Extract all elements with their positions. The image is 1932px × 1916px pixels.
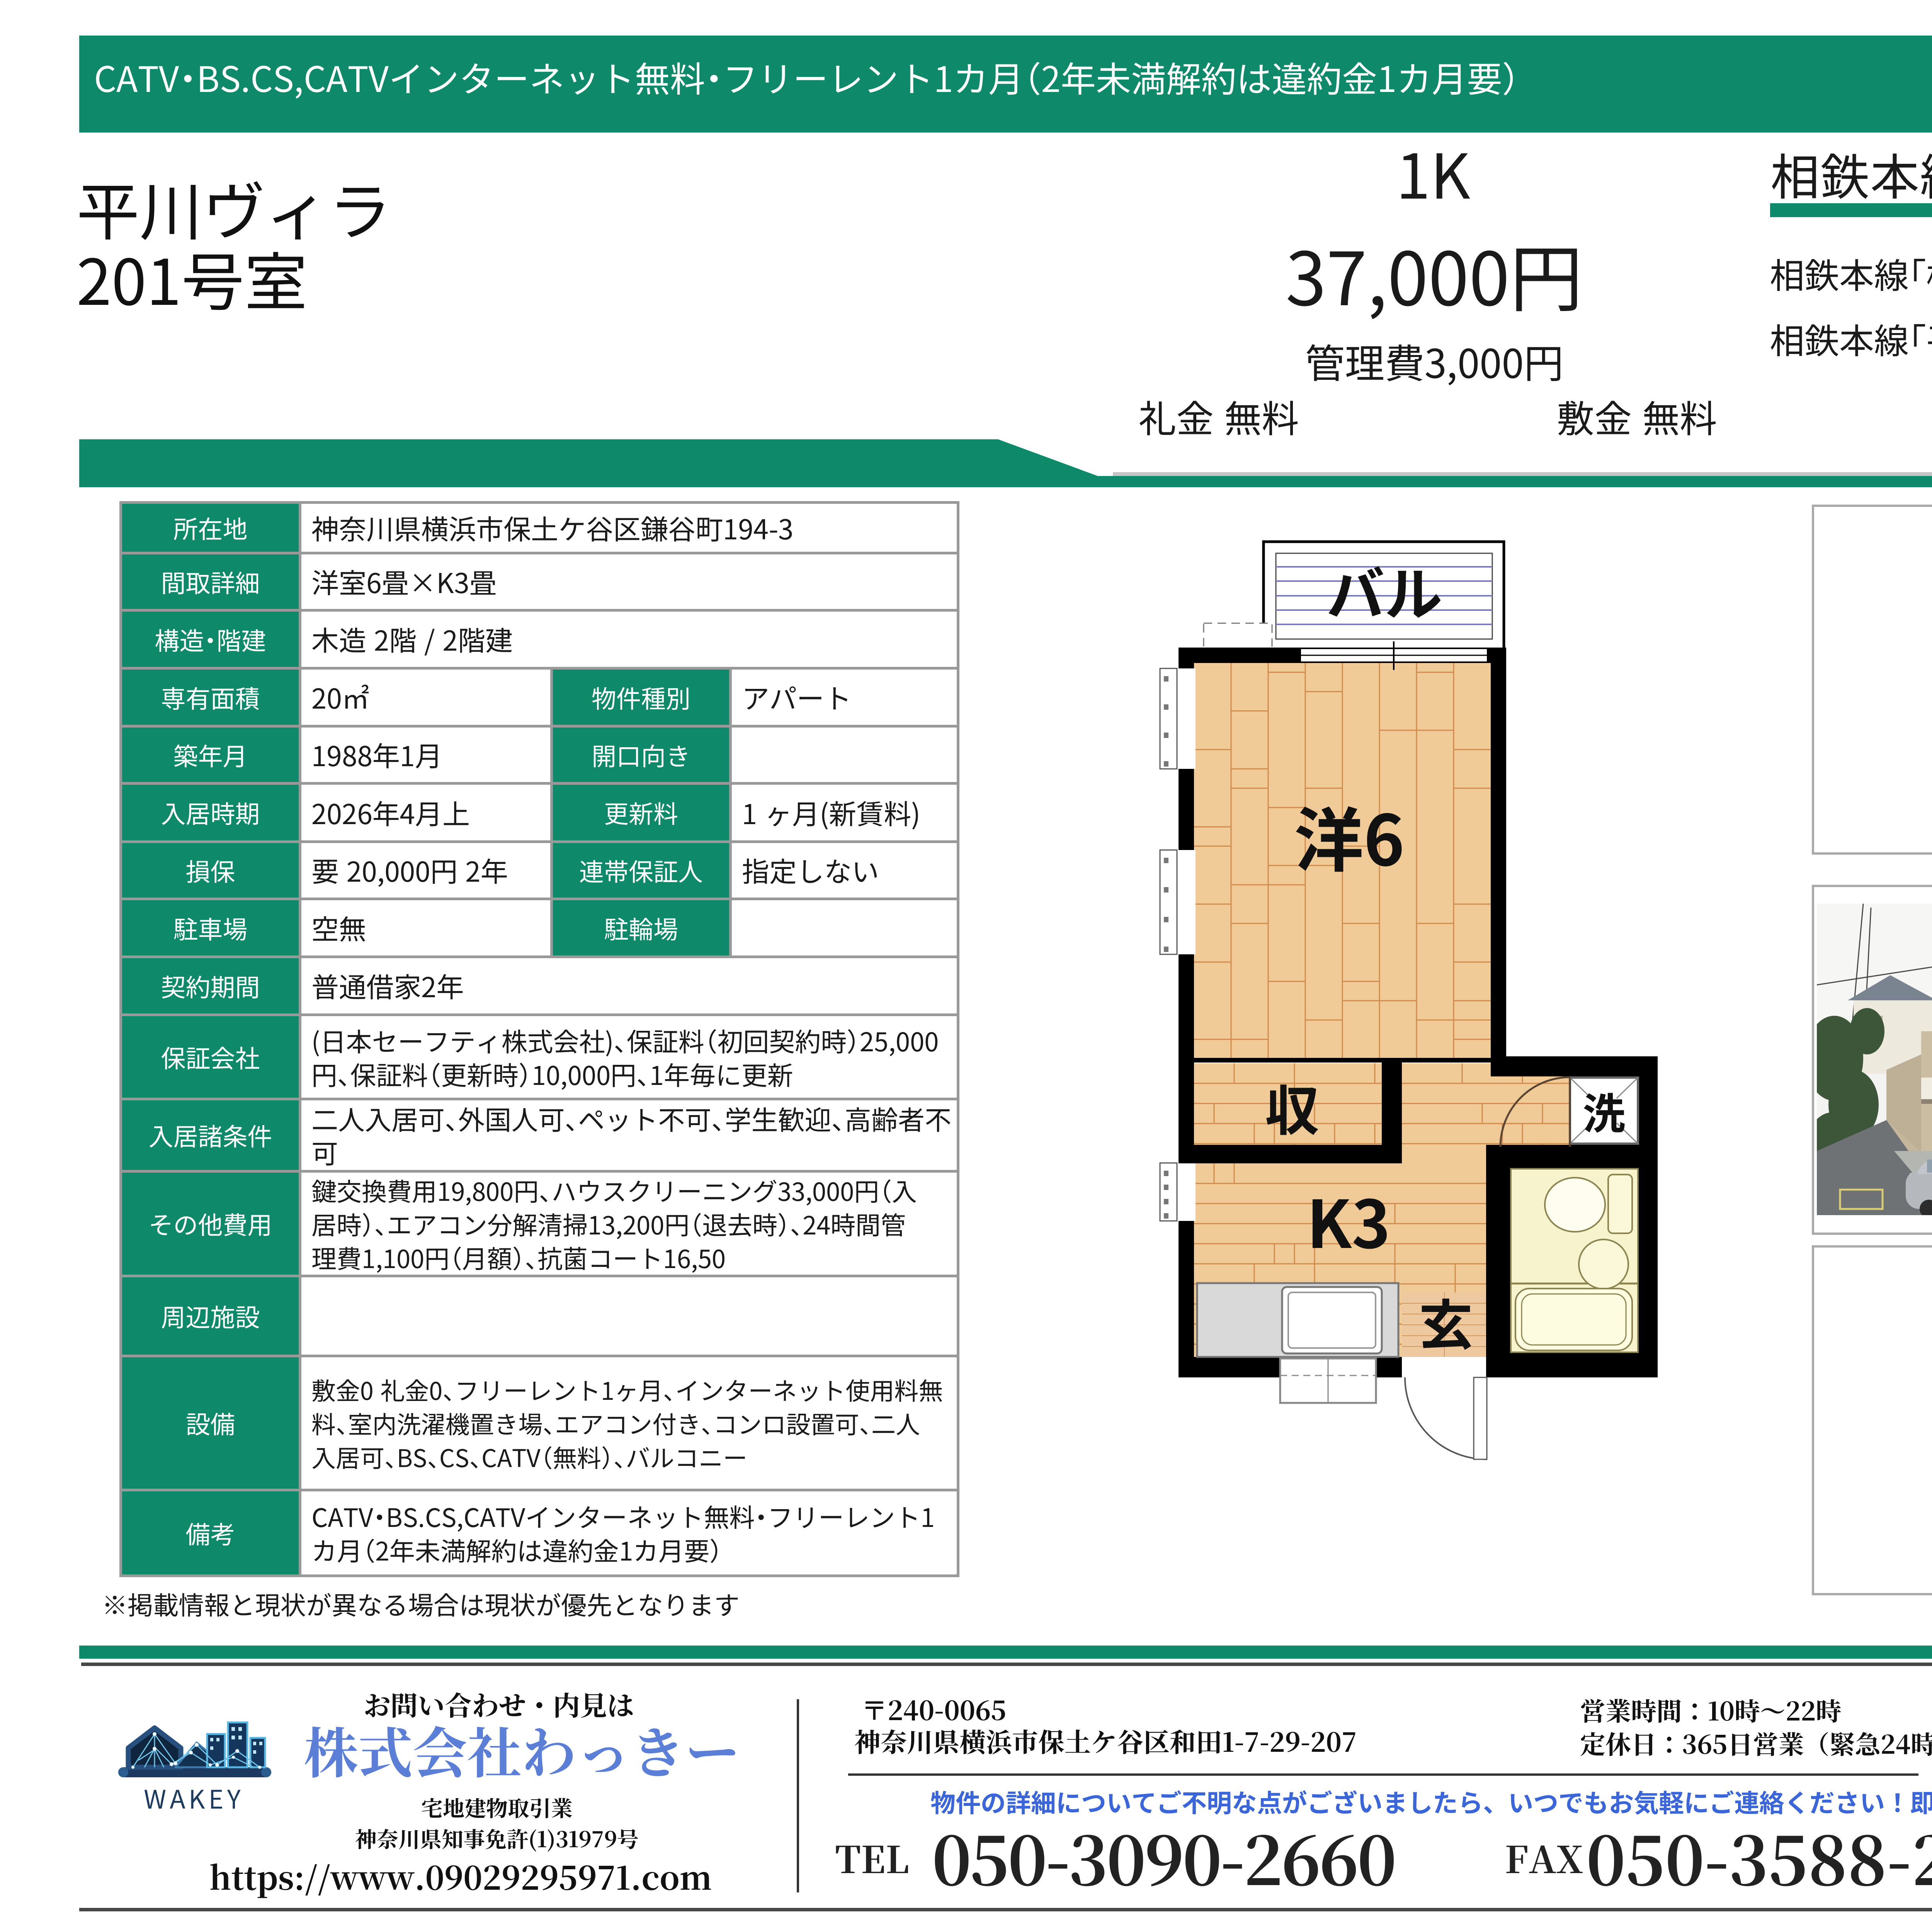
svg-text:K3: K3 (1307, 1172, 1391, 1267)
svg-text:玄: 玄 (1419, 1282, 1473, 1360)
svg-text:洋6: 洋6 (1294, 785, 1405, 886)
svg-text:洗: 洗 (1583, 1080, 1625, 1141)
svg-text:バル: バル (1327, 548, 1442, 632)
svg-text:収: 収 (1265, 1068, 1319, 1146)
